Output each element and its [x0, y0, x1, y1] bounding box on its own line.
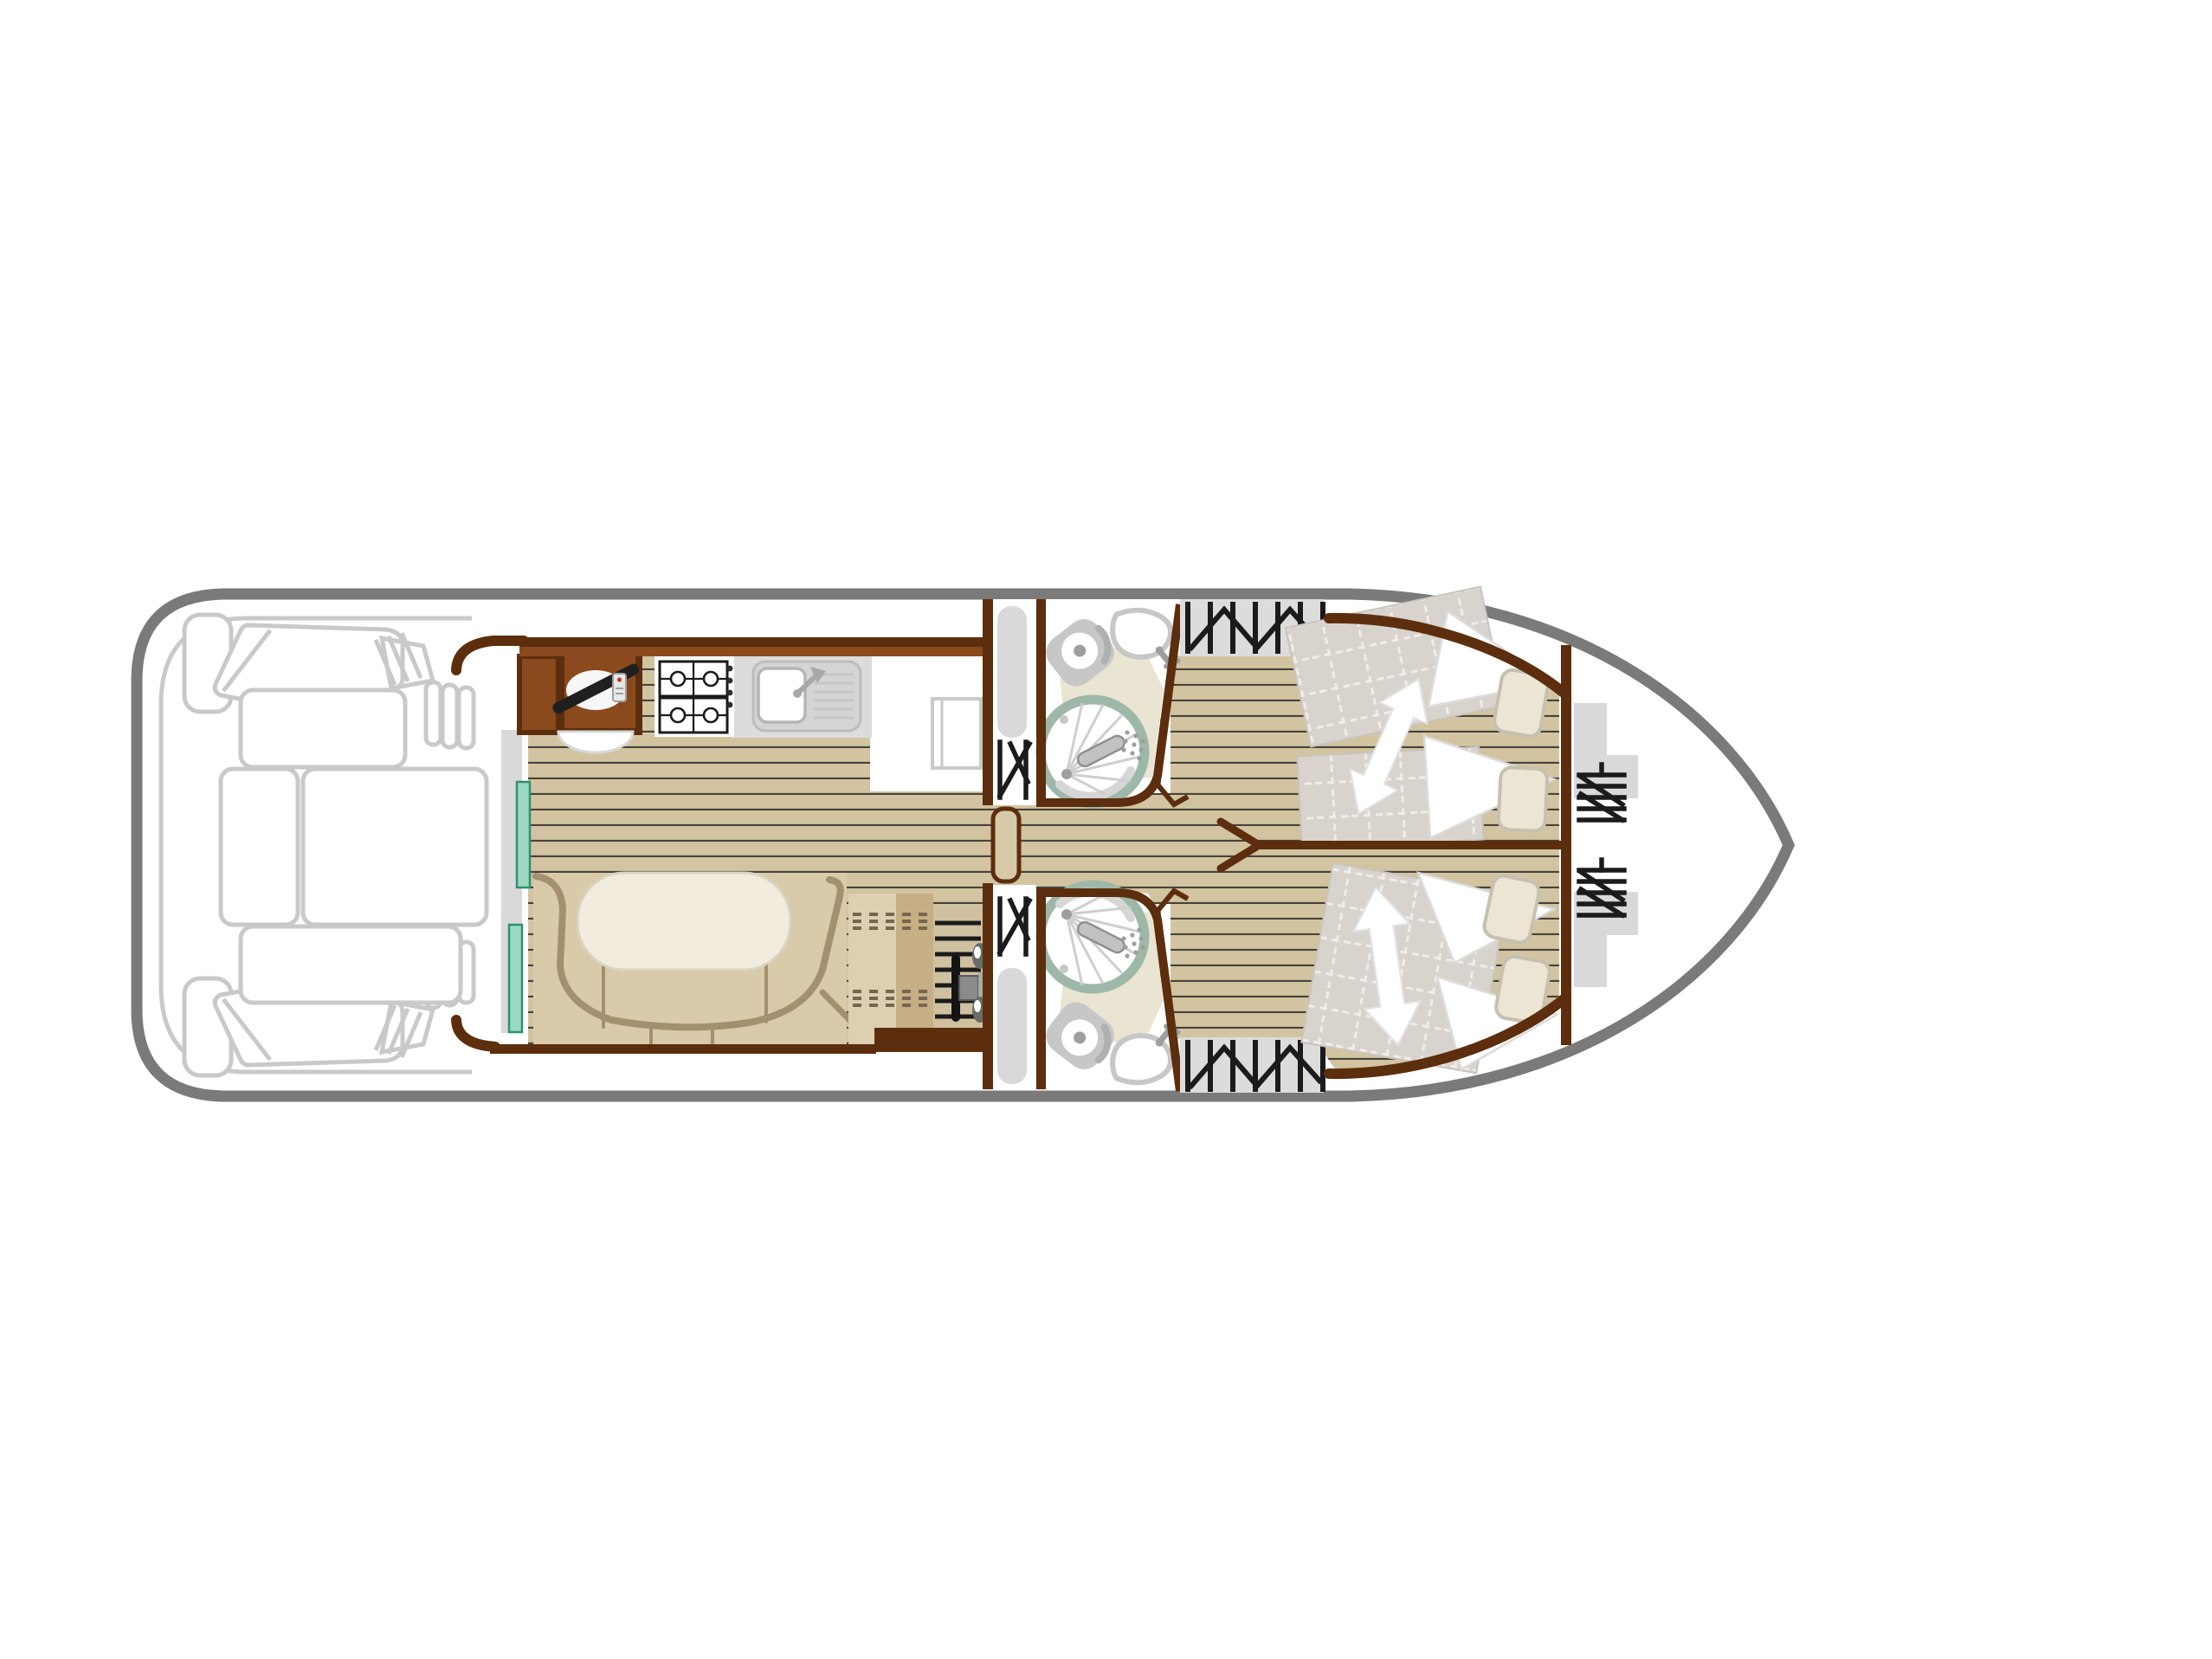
shower-bottom	[1041, 885, 1145, 989]
engine-control-icon	[959, 976, 978, 1000]
patio-door-panel	[509, 925, 522, 1032]
aft-bench-cushion	[241, 690, 405, 767]
aft-bench-cushion	[303, 769, 487, 925]
floor-plan-canvas: Canal boat deck floor plan — top-down la…	[0, 0, 2212, 1659]
aft-bench-cushion	[221, 769, 298, 925]
helm-side-cabinet	[519, 656, 558, 733]
patio-door-panel	[517, 782, 530, 888]
bathroom-wall-left	[1036, 888, 1046, 1089]
sliding-door-panel	[997, 606, 1027, 738]
saloon-front-wall-face	[519, 647, 983, 656]
sliding-door-panel	[997, 968, 1027, 1084]
step-fitting-highlight	[974, 946, 981, 959]
remote-control-icon	[613, 674, 626, 701]
saloon-rear-wall-thick	[874, 1028, 985, 1052]
dinette-bathroom-wall	[983, 883, 993, 1089]
dinette	[533, 873, 989, 1050]
aft-bench-cushion	[241, 926, 461, 1003]
corridor-door-leaf	[993, 809, 1019, 881]
companionway-steps	[933, 909, 989, 1028]
dinette-table	[577, 873, 790, 970]
wardrobe-icon-cabin-bottom	[1188, 1043, 1323, 1089]
galley-sink	[753, 662, 861, 731]
saloon-rear-wall	[490, 1044, 876, 1054]
cabin-partition-wall	[1253, 841, 1564, 849]
shower-top	[1041, 700, 1145, 804]
bathroom-wall-left	[1036, 599, 1046, 807]
sideboard	[848, 894, 933, 1050]
pillow-cabin-top	[1498, 767, 1548, 832]
hob-burners	[660, 662, 727, 733]
fridge-locker	[932, 699, 981, 768]
galley-bathroom-wall	[983, 599, 993, 805]
step-fitting-highlight	[974, 1000, 981, 1012]
